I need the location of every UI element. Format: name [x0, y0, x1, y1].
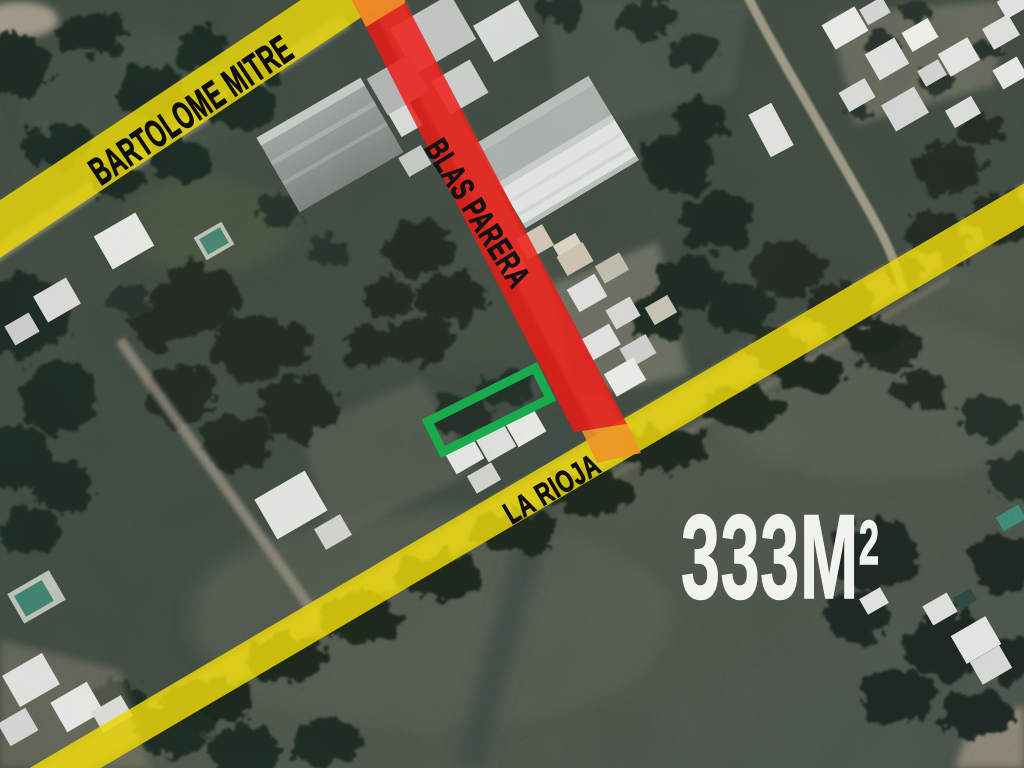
svg-text:333M2: 333M2 — [681, 489, 880, 623]
